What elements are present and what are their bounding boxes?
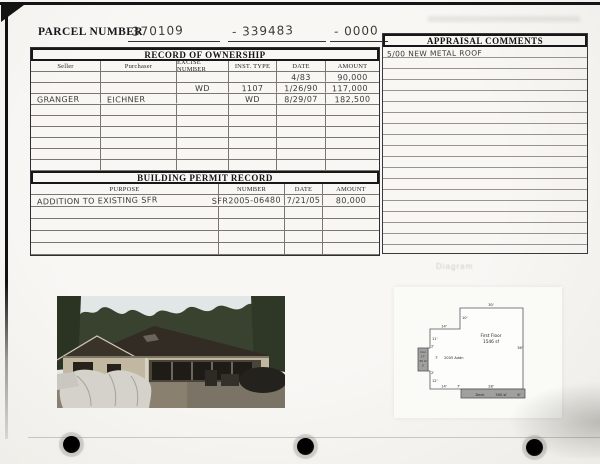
- permit-row: [31, 207, 379, 219]
- col-amount: AMOUNT: [323, 184, 379, 194]
- parcel-number-segment-2: - 339483: [228, 22, 326, 42]
- addition-label: 2005 Addn: [444, 356, 464, 360]
- parcel-number-segment-3: - 0000: [330, 22, 388, 42]
- cell: [31, 138, 101, 148]
- cell: [31, 160, 101, 170]
- left-tables: RECORD OF OWNERSHIP Seller Purchaser EXC…: [30, 47, 380, 256]
- cell-date: 1/26/90: [277, 83, 326, 94]
- cell: [285, 231, 323, 242]
- addn-box-line3: 50 sf: [420, 359, 428, 363]
- dim-top: 30': [488, 303, 494, 307]
- cell: [277, 116, 326, 126]
- addn-box-line4: 3': [422, 364, 425, 368]
- cell: [177, 105, 229, 115]
- cell: [101, 83, 177, 93]
- cell: [177, 127, 229, 137]
- cell: [31, 83, 101, 93]
- addn-box-line1: Cov: [420, 350, 426, 354]
- ownership-row: 4/83 90,000: [31, 72, 379, 83]
- ownership-row: GRANGER EICHNER WD 8/29/07 182,500: [31, 94, 379, 105]
- parcel-number-value-3: - 0000: [330, 23, 379, 38]
- dim-upper: 14': [441, 325, 447, 329]
- cell: [101, 138, 177, 148]
- addn-box-line2: 17': [421, 355, 426, 359]
- cell: [219, 231, 285, 242]
- dim-jog-upper: 2': [431, 345, 434, 349]
- permit-row: [31, 243, 379, 255]
- col-inst-type: INST. TYPE: [229, 61, 277, 71]
- cell: [285, 243, 323, 254]
- dim-bottom: 14': [441, 385, 447, 389]
- cell: [31, 72, 101, 82]
- cell: [323, 207, 379, 218]
- dim-left-lower: 12': [432, 379, 438, 383]
- dim-jog-lower: 2': [431, 371, 434, 375]
- cell: [323, 243, 379, 254]
- parcel-number-value-2: - 339483: [228, 23, 294, 39]
- dim-left-upper: 11': [432, 337, 438, 341]
- parcel-number-segment-1: 370109: [128, 22, 220, 42]
- cell: [101, 160, 177, 170]
- ownership-row: [31, 138, 379, 149]
- cell: [229, 138, 277, 148]
- cell: [277, 105, 326, 115]
- ownership-row: WD 1107 1/26/90 117,000: [31, 83, 379, 94]
- cell: [229, 160, 277, 170]
- scan-top-edge: [0, 2, 600, 5]
- cell-seller: GRANGER: [31, 93, 101, 104]
- ownership-row: [31, 149, 379, 160]
- ownership-row: [31, 160, 379, 171]
- page-corner-shadow: [500, 378, 600, 458]
- cell: [277, 138, 326, 148]
- permit-section-title: BUILDING PERMIT RECORD: [31, 171, 379, 184]
- ownership-row: [31, 116, 379, 127]
- corner-fold-artifact: [1, 2, 28, 22]
- cell-purpose: ADDITION TO EXISTING SFR: [31, 193, 219, 207]
- cell: [219, 243, 285, 254]
- col-purpose: PURPOSE: [31, 184, 219, 194]
- cell: [177, 116, 229, 126]
- col-seller: Seller: [31, 61, 101, 71]
- cell-inst-type: 1107: [229, 83, 277, 94]
- hole-punch: [297, 438, 314, 455]
- cell: [277, 127, 326, 137]
- cell: [285, 207, 323, 218]
- cell: [31, 127, 101, 137]
- cell-amount: 90,000: [326, 72, 379, 83]
- cell: [277, 149, 326, 159]
- appraisal-comments-panel: APPRAISAL COMMENTS 5/00 NEW METAL ROOF: [382, 33, 588, 254]
- cell: [229, 116, 277, 126]
- cell: [31, 207, 219, 218]
- cell: [219, 207, 285, 218]
- first-floor-label: First Floor: [480, 333, 501, 339]
- col-amount: AMOUNT: [326, 61, 379, 71]
- cell: [31, 149, 101, 159]
- deck-label: Deck: [475, 393, 485, 397]
- cell-number: SFR2005-06480: [219, 194, 285, 206]
- first-floor-area: 1546 sf: [483, 339, 500, 345]
- cell: [31, 243, 219, 254]
- col-number: NUMBER: [219, 184, 285, 194]
- ownership-row: [31, 127, 379, 138]
- ownership-header-row: Seller Purchaser EXCISE NUMBER INST. TYP…: [31, 61, 379, 72]
- cell-date: 8/29/07: [277, 94, 326, 105]
- cell: [31, 231, 219, 242]
- floorplan-outline: [428, 308, 523, 389]
- cell: [326, 105, 379, 115]
- cell-amount: 117,000: [326, 83, 379, 94]
- appraisal-note: 5/00 NEW METAL ROOF: [387, 49, 482, 59]
- cell-amount: 80,000: [323, 195, 379, 207]
- cell: [101, 105, 177, 115]
- cell: [229, 127, 277, 137]
- scanned-appraisal-card: PARCEL NUMBER 370109 - 339483 - 0000 REC…: [0, 0, 600, 464]
- cell-purchaser: EICHNER: [101, 93, 177, 104]
- cell: [31, 116, 101, 126]
- hole-punch: [63, 436, 80, 453]
- dim-step: 10': [462, 316, 468, 320]
- cell: [323, 231, 379, 242]
- cell: [326, 160, 379, 170]
- ownership-row: [31, 105, 379, 116]
- permit-row: [31, 219, 379, 231]
- cell: [177, 138, 229, 148]
- parcel-number-value-1: 370109: [128, 23, 184, 38]
- col-date: DATE: [285, 184, 323, 194]
- dim-bottom-jog: 7': [457, 385, 460, 389]
- property-photo: [57, 296, 285, 408]
- cell: [177, 94, 229, 104]
- diagram-ghost-label: Diagram: [436, 262, 473, 271]
- cell: [229, 149, 277, 159]
- cell-date: 7/21/05: [285, 195, 323, 207]
- permit-row: ADDITION TO EXISTING SFR SFR2005-06480 7…: [31, 195, 379, 207]
- cell: [101, 127, 177, 137]
- cell: [326, 138, 379, 148]
- col-excise-number: EXCISE NUMBER: [177, 61, 229, 71]
- cell: [229, 105, 277, 115]
- cell: [101, 116, 177, 126]
- cell: [101, 149, 177, 159]
- cell-amount: 182,500: [326, 94, 379, 105]
- cell-date: 4/83: [277, 72, 326, 83]
- cell-excise: WD: [177, 83, 229, 94]
- cell: [326, 116, 379, 126]
- cell: [229, 72, 277, 82]
- cell: [219, 219, 285, 230]
- cell-inst-type: WD: [229, 94, 277, 105]
- cell: [31, 105, 101, 115]
- col-date: DATE: [277, 61, 326, 71]
- cell: [277, 160, 326, 170]
- cell: [101, 72, 177, 82]
- cell: [326, 127, 379, 137]
- cell: [177, 149, 229, 159]
- cell: [323, 219, 379, 230]
- cell: [177, 72, 229, 82]
- cell: [31, 219, 219, 230]
- appraisal-section-title: APPRAISAL COMMENTS: [383, 34, 587, 47]
- scan-left-edge: [5, 3, 8, 439]
- dim-deck-top: 28': [488, 385, 494, 389]
- appraisal-ruled-lines: 5/00 NEW METAL ROOF: [383, 47, 587, 253]
- cell: [285, 219, 323, 230]
- col-purchaser: Purchaser: [101, 61, 177, 71]
- permit-row: [31, 231, 379, 243]
- cell: [326, 149, 379, 159]
- dim-addn-right: 7': [435, 356, 438, 360]
- cell: [177, 160, 229, 170]
- dim-right: 36': [517, 346, 523, 350]
